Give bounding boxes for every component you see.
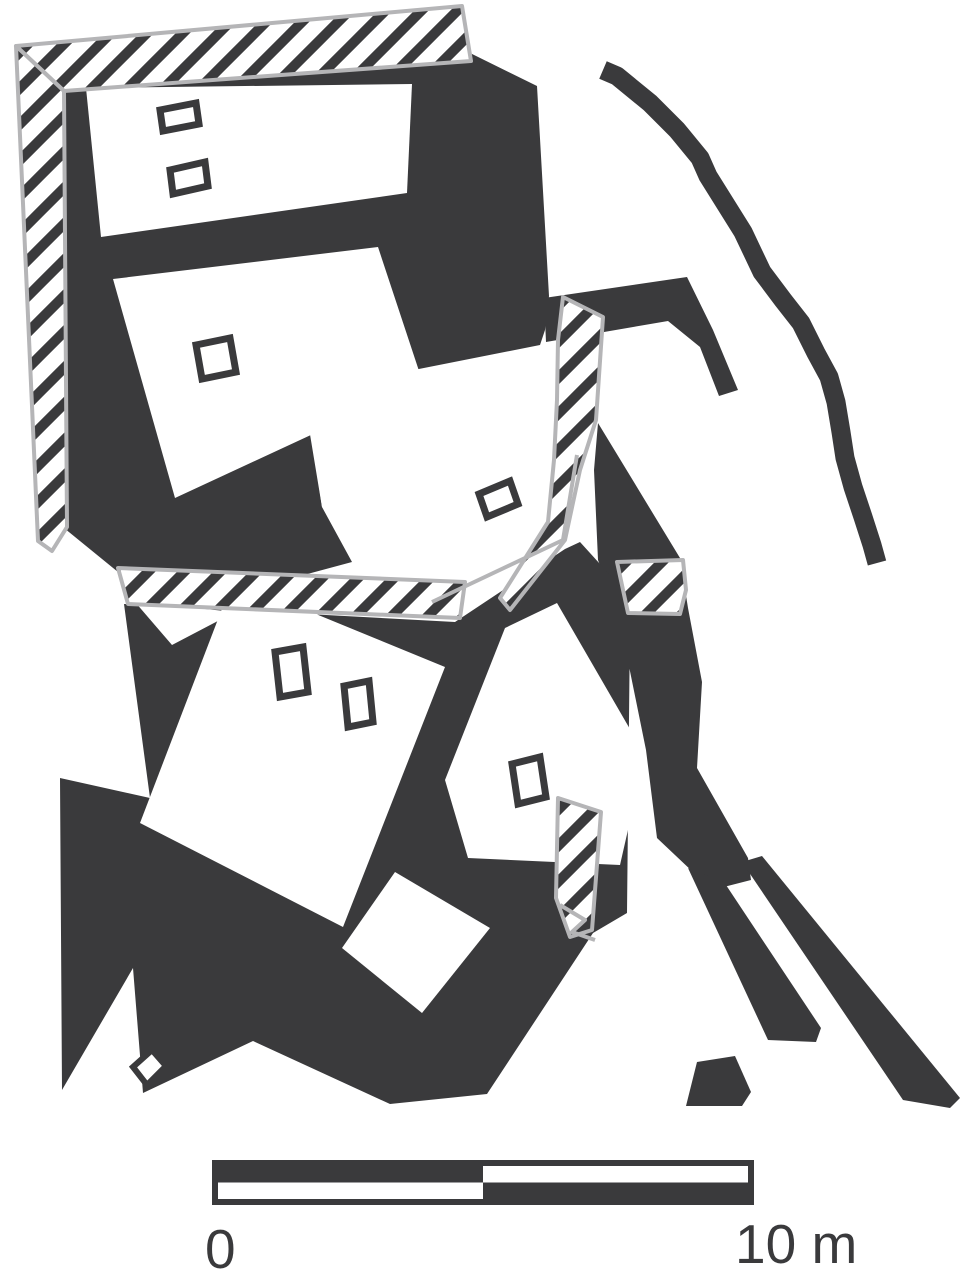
feature-rect-1 (160, 103, 199, 131)
scale-label-ten-m: 10 m (735, 1213, 857, 1275)
hatched-band-left (16, 46, 67, 551)
scale-bar: 0 10 m (205, 1163, 857, 1279)
wall-tail-a (688, 868, 821, 1042)
feature-rect-3 (196, 338, 236, 379)
feature-rect-2 (170, 162, 208, 194)
site-plan-canvas: 0 10 m (0, 0, 972, 1279)
wall-fragment-south (686, 1056, 751, 1106)
feature-rect-6 (344, 681, 373, 727)
hatched-patch-east (617, 560, 686, 614)
site-plan-figure: 0 10 m (0, 0, 972, 1279)
feature-rect-7 (512, 757, 546, 804)
scale-label-zero: 0 (205, 1218, 236, 1279)
feature-rect-5 (275, 647, 308, 697)
